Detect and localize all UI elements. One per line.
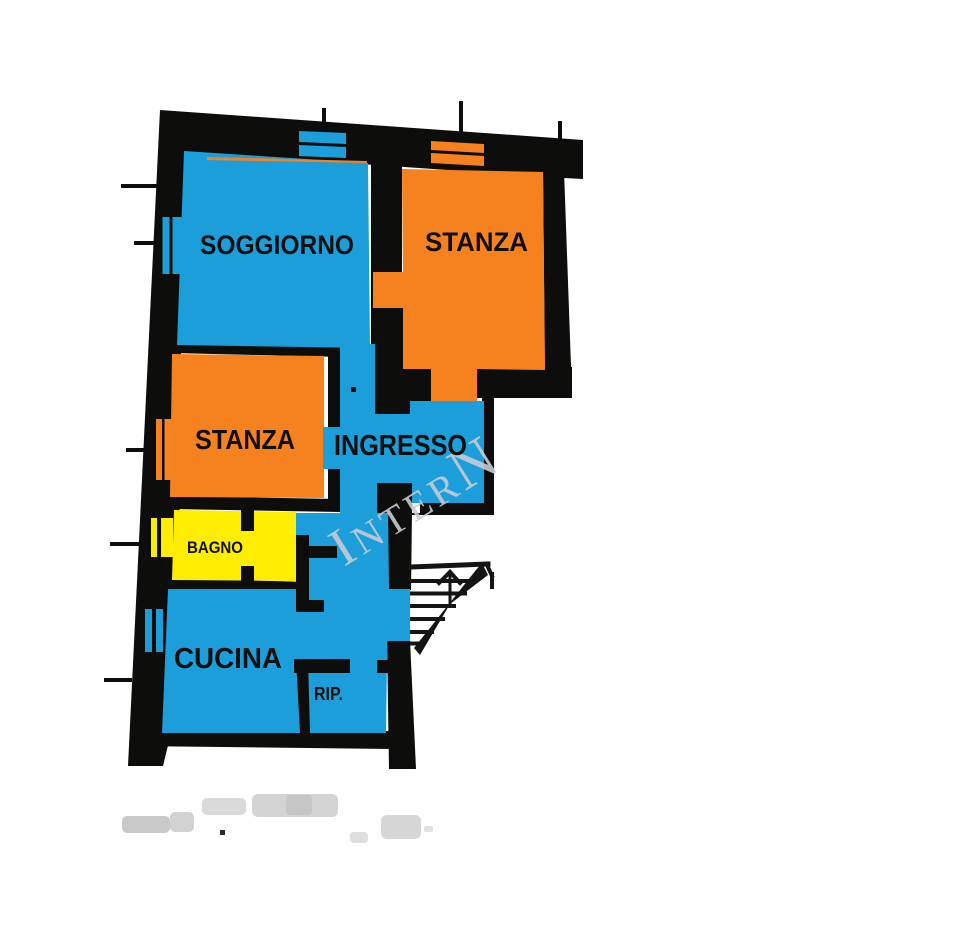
svg-text:RIP.: RIP. — [314, 684, 343, 704]
svg-text:INGRESSO: INGRESSO — [334, 430, 467, 462]
svg-text:BAGNO: BAGNO — [187, 538, 243, 557]
svg-text:SOGGIORNO: SOGGIORNO — [200, 230, 354, 260]
svg-text:STANZA: STANZA — [425, 227, 528, 257]
svg-text:STANZA: STANZA — [195, 424, 295, 455]
svg-text:CUCINA: CUCINA — [174, 643, 282, 675]
